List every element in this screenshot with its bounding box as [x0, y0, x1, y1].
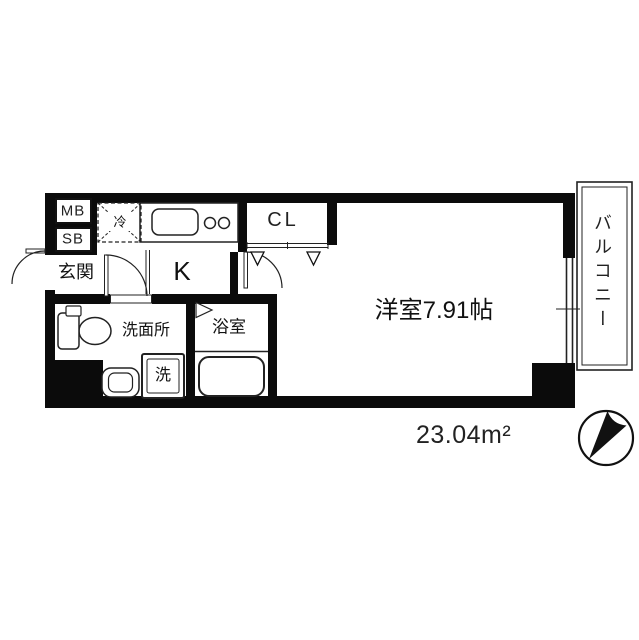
folding-door-mark-icon	[307, 252, 320, 265]
toilet	[58, 306, 111, 349]
floorplan-drawing	[0, 0, 639, 640]
washing-machine-label: 洗	[155, 368, 171, 384]
balcony-label: バルコニー	[589, 213, 615, 333]
kitchen-sink	[152, 209, 198, 235]
bathtub	[199, 357, 264, 396]
closet-doors	[247, 242, 328, 265]
wash-basin	[102, 368, 139, 397]
folding-door-mark-icon	[251, 252, 264, 265]
main-room-label: 洋室7.91帖	[375, 299, 494, 323]
entrance-door	[12, 249, 45, 284]
bathroom-label: 浴室	[212, 319, 246, 336]
burner-icon	[219, 218, 230, 229]
kitchen-label: K	[173, 258, 190, 284]
kitchen-counter	[140, 203, 238, 242]
meter-box-label: MB	[61, 204, 86, 219]
floorplan-canvas: MB SB 冷 玄関 K CL 洋室7.91帖 洗面所 浴室 洗 バルコニー 2…	[0, 0, 639, 640]
bath-door-mark-icon	[196, 303, 212, 318]
washroom-label: 洗面所	[122, 323, 170, 339]
main-room-door	[244, 252, 282, 288]
washroom-door	[105, 255, 152, 303]
closet-label: CL	[267, 210, 299, 230]
refrigerator-label: 冷	[113, 216, 126, 229]
shaft-box-label: SB	[62, 232, 84, 247]
entrance-label: 玄関	[58, 263, 94, 281]
burner-icon	[205, 218, 216, 229]
compass-north-icon	[579, 411, 633, 465]
total-area-label: 23.04m²	[416, 421, 511, 450]
